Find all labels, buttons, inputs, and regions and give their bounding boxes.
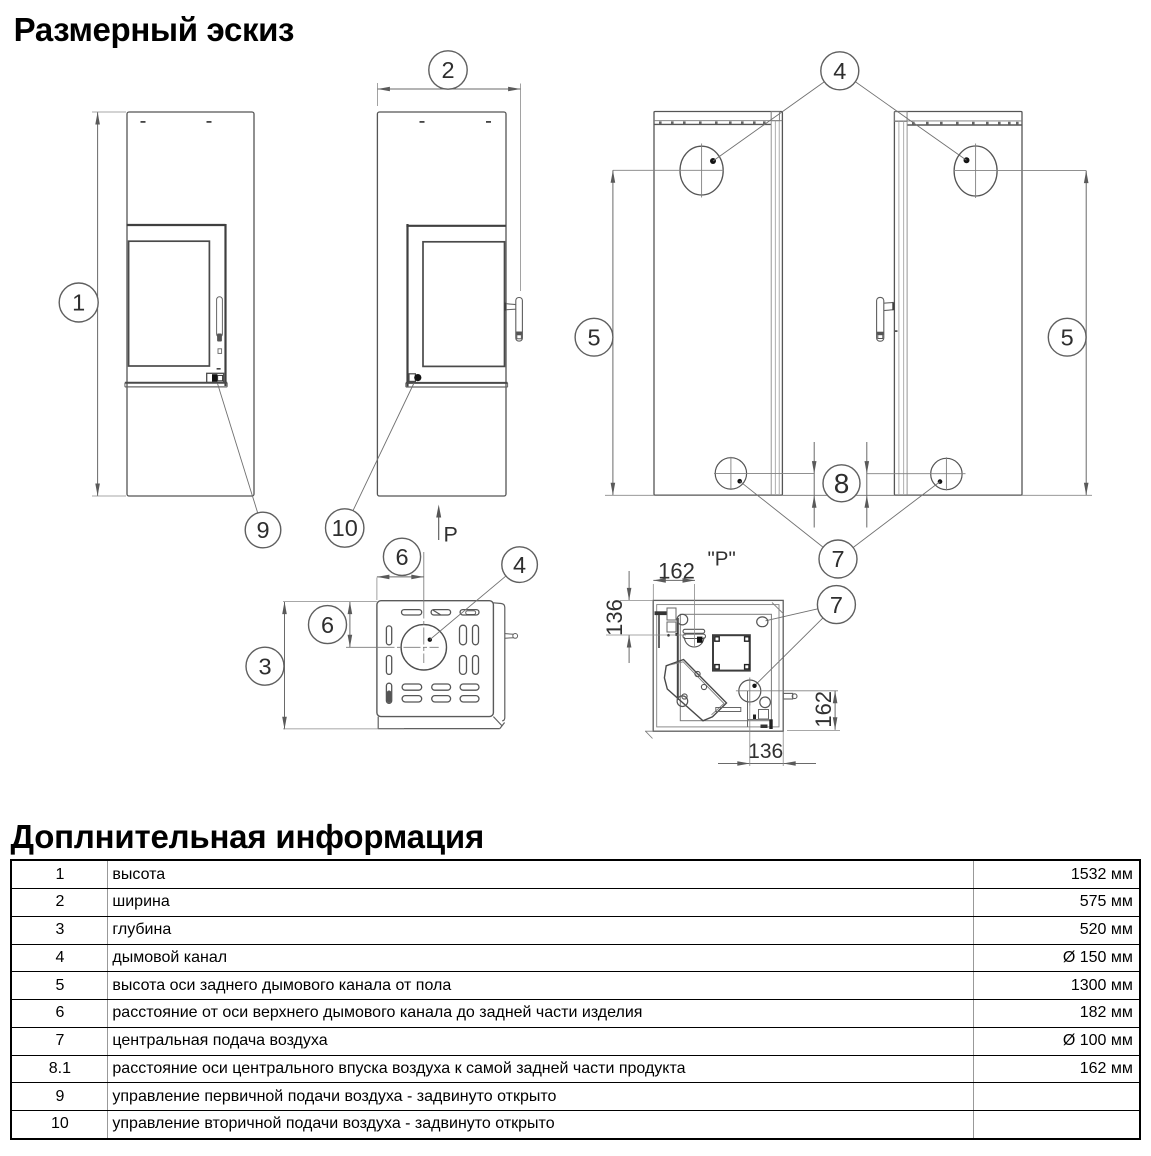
svg-text:4: 4	[513, 552, 526, 578]
svg-text:2: 2	[441, 57, 454, 83]
svg-text:6: 6	[321, 612, 334, 638]
svg-text:10: 10	[332, 515, 358, 541]
svg-text:136: 136	[602, 599, 627, 636]
svg-text:9: 9	[256, 517, 269, 543]
svg-text:5: 5	[1061, 324, 1074, 350]
svg-text:8: 8	[834, 468, 850, 499]
svg-text:6: 6	[395, 544, 408, 570]
svg-text:4: 4	[833, 58, 846, 84]
svg-text:"P": "P"	[708, 547, 736, 570]
svg-text:162: 162	[658, 559, 695, 584]
svg-text:136: 136	[748, 740, 783, 763]
svg-text:7: 7	[831, 546, 844, 572]
svg-text:7: 7	[830, 592, 843, 618]
svg-text:162: 162	[811, 691, 836, 728]
svg-text:P: P	[444, 523, 458, 547]
svg-text:3: 3	[258, 653, 271, 679]
svg-text:5: 5	[587, 324, 600, 350]
svg-text:1: 1	[72, 290, 85, 316]
